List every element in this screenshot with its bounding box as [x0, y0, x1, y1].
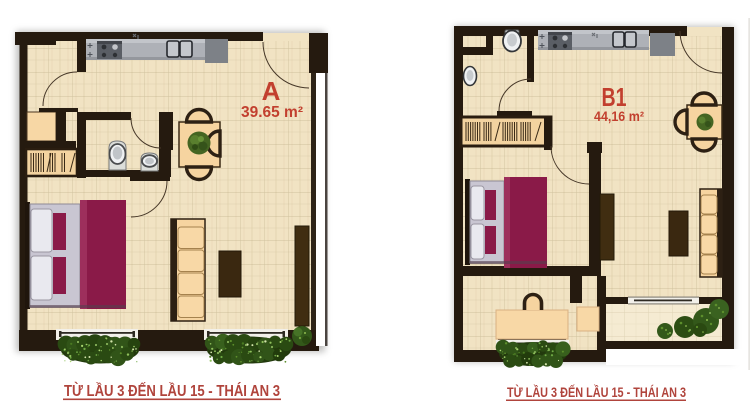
svg-text:TỪ LẦU 3 ĐẾN LẦU 15 - THÁI AN: TỪ LẦU 3 ĐẾN LẦU 15 - THÁI AN 3 — [64, 382, 280, 400]
svg-text:39.65 m²: 39.65 m² — [241, 104, 303, 121]
svg-text:A: A — [262, 76, 281, 106]
svg-text:TỪ LẦU 3 ĐẾN LẦU 15 - THÁI AN: TỪ LẦU 3 ĐẾN LẦU 15 - THÁI AN 3 — [507, 385, 686, 400]
svg-text:44,16 m²: 44,16 m² — [594, 108, 644, 124]
